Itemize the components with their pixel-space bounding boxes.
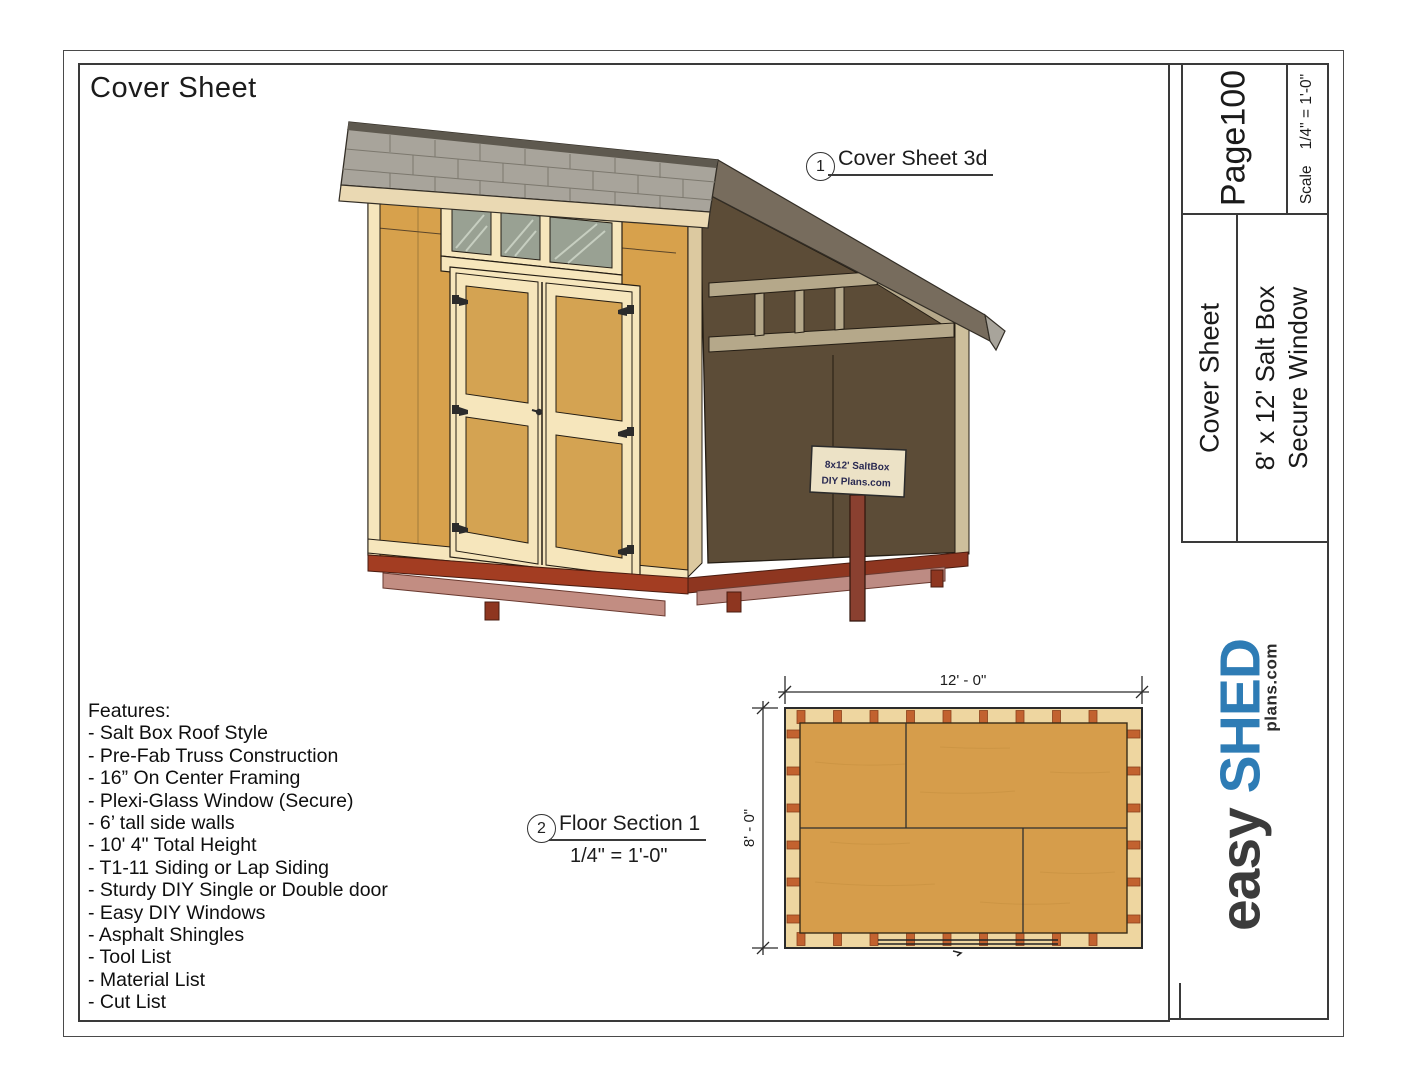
titleblock-left-line (1181, 63, 1183, 543)
model-name-line1: 8' x 12' Salt Box (1249, 286, 1282, 471)
titleblock-model-name: 8' x 12' Salt Box Secure Window (1249, 286, 1315, 471)
feature-item: - T1-11 Siding or Lap Siding (88, 857, 388, 879)
feature-item: - 10' 4" Total Height (88, 834, 388, 856)
logo-word-easy: easy (1209, 808, 1273, 931)
callout-cover-sheet-3d: 1 Cover Sheet 3d (806, 152, 993, 181)
titleblock-bottom-line (1168, 1018, 1329, 1020)
titleblock-divider-1 (1181, 213, 1329, 215)
titleblock-model-divider (1236, 213, 1238, 543)
titleblock-top-line (1168, 63, 1329, 65)
callout-floor-section: 2 Floor Section 1 1/4" = 1'-0" (527, 814, 706, 868)
feature-item: - 6’ tall side walls (88, 812, 388, 834)
callout-2-label: Floor Section 1 (549, 812, 706, 841)
callout-1-label: Cover Sheet 3d (828, 146, 993, 176)
titleblock-scale: Scale1/4" = 1'-0" (1298, 74, 1316, 204)
feature-item: - Plexi-Glass Window (Secure) (88, 790, 388, 812)
dim-width-text: 12' - 0" (940, 672, 987, 689)
double-doors (450, 267, 640, 580)
features-list: Features: - Salt Box Roof Style - Pre-Fa… (88, 700, 388, 1014)
dim-height-text: 8' - 0" (741, 809, 758, 847)
feature-item: - Pre-Fab Truss Construction (88, 745, 388, 767)
floor-plan-drawing: 12' - 0" 8' - 0" (740, 652, 1160, 964)
feature-item: - Salt Box Roof Style (88, 722, 388, 744)
feature-item: - 16” On Center Framing (88, 767, 388, 789)
titleblock-sheet-name: Cover Sheet (1195, 303, 1226, 453)
shed-front-wall (368, 190, 688, 584)
features-heading: Features: (88, 700, 388, 722)
feature-item: - Material List (88, 969, 388, 991)
titleblock-scale-divider (1286, 63, 1288, 215)
titleblock-left-stub (1179, 983, 1181, 1020)
page-title: Cover Sheet (90, 72, 257, 105)
feature-item: - Easy DIY Windows (88, 902, 388, 924)
feature-item: - Tool List (88, 946, 388, 968)
scale-value: 1/4" = 1'-0" (1298, 74, 1315, 150)
brand-logo: easy SHED plans.com (1213, 639, 1282, 931)
callout-2-scale: 1/4" = 1'-0" (556, 841, 706, 868)
feature-item: - Sturdy DIY Single or Double door (88, 879, 388, 901)
feature-item: - Asphalt Shingles (88, 924, 388, 946)
feature-item: - Cut List (88, 991, 388, 1013)
cover-sheet-page: { "page": { "title": "Cover Sheet" }, "c… (0, 0, 1408, 1088)
sign-post (850, 495, 865, 621)
model-name-line2: Secure Window (1282, 286, 1315, 471)
scale-label: Scale (1298, 165, 1315, 204)
titleblock-divider-2 (1181, 541, 1329, 543)
titleblock-page-number: Page100 (1215, 70, 1254, 206)
floor-deck (785, 708, 1142, 956)
shed-3d-drawing: 8x12' SaltBox DIY Plans.com (335, 105, 1035, 630)
